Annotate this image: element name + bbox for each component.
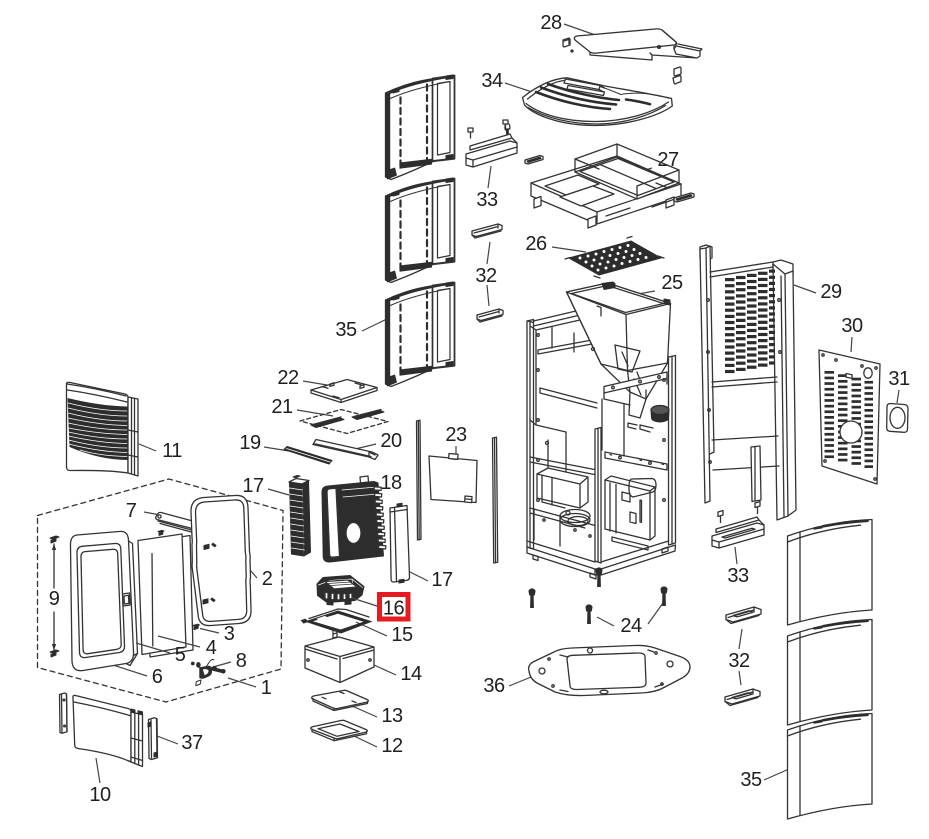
- svg-text:32: 32: [475, 265, 497, 287]
- svg-text:27: 27: [657, 149, 679, 171]
- svg-text:9: 9: [49, 588, 60, 610]
- svg-text:35: 35: [335, 319, 357, 341]
- svg-text:31: 31: [888, 368, 910, 390]
- svg-text:37: 37: [181, 732, 203, 754]
- svg-text:4: 4: [206, 637, 217, 659]
- svg-text:26: 26: [525, 233, 547, 255]
- svg-text:3: 3: [224, 623, 235, 645]
- svg-text:18: 18: [380, 472, 402, 494]
- svg-text:33: 33: [727, 565, 749, 587]
- svg-text:30: 30: [841, 315, 863, 337]
- svg-text:34: 34: [481, 70, 503, 92]
- svg-text:33: 33: [476, 189, 498, 211]
- svg-text:12: 12: [381, 735, 403, 757]
- svg-text:2: 2: [262, 568, 273, 590]
- svg-text:10: 10: [89, 784, 111, 806]
- svg-text:17: 17: [242, 475, 264, 497]
- svg-text:36: 36: [483, 675, 505, 697]
- svg-text:5: 5: [175, 644, 186, 666]
- svg-text:19: 19: [239, 432, 261, 454]
- svg-text:15: 15: [391, 624, 413, 646]
- svg-text:28: 28: [540, 12, 562, 34]
- svg-text:8: 8: [236, 650, 247, 672]
- svg-text:7: 7: [126, 500, 137, 522]
- svg-text:25: 25: [661, 272, 683, 294]
- svg-text:6: 6: [152, 666, 163, 688]
- svg-text:22: 22: [277, 367, 299, 389]
- svg-text:29: 29: [820, 281, 842, 303]
- svg-text:32: 32: [728, 650, 750, 672]
- svg-text:14: 14: [400, 663, 422, 685]
- svg-text:11: 11: [162, 440, 182, 462]
- svg-text:13: 13: [381, 705, 403, 727]
- svg-text:24: 24: [620, 615, 642, 637]
- svg-text:21: 21: [271, 396, 293, 418]
- svg-text:1: 1: [261, 677, 272, 699]
- svg-text:23: 23: [445, 424, 467, 446]
- svg-text:16: 16: [383, 598, 405, 620]
- svg-text:20: 20: [380, 430, 402, 452]
- svg-text:17: 17: [431, 569, 453, 591]
- svg-text:35: 35: [740, 769, 762, 791]
